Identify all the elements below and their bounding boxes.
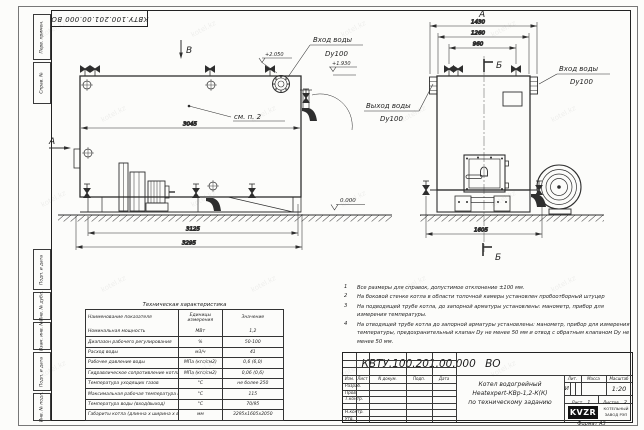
param-unit: МВт: [179, 326, 223, 336]
sheet-cell: Лист 1: [564, 395, 598, 403]
col-ndokum: N докум.: [369, 375, 406, 383]
front-inlet-label: Вход воды: [559, 65, 599, 73]
front-view-title: А: [478, 10, 485, 20]
param-value: 50-100: [223, 336, 283, 346]
param-value: 1,2: [223, 326, 283, 336]
front-outlet-flange: [430, 77, 438, 94]
front-inlet-dn: Dy100: [570, 78, 593, 86]
param-name: Расход воды: [86, 347, 179, 357]
col-data: Дата: [432, 375, 456, 383]
param-name: Габариты котла (длинна х ширина х высота…: [86, 409, 179, 419]
front-outlet-dn: Dy100: [380, 115, 403, 123]
sheets-cell: Листов 2: [598, 395, 632, 403]
dim-1260: 1260: [471, 31, 485, 37]
param-name: Максимальная рабочая температура воды: [86, 388, 179, 398]
elev-2050: +2.050: [265, 52, 284, 58]
param-unit: °С: [179, 378, 223, 388]
elev-0000: 0.000: [340, 198, 356, 204]
company-name: КОТЕЛЬНЫЙЗАВОД РЭП: [601, 406, 631, 417]
param-name: Рабочее давление воды: [86, 357, 179, 367]
section-b-top: Б: [496, 61, 502, 71]
param-name: Диапазон рабочего регулирования: [86, 336, 179, 346]
param-unit: °С: [179, 399, 223, 409]
table-row: Расход воды м3/ч 41: [86, 347, 283, 357]
param-name: Температура уходящих газов: [86, 378, 179, 388]
side-skid: [80, 197, 301, 212]
door-handle-bar: [466, 175, 482, 179]
param-unit: МПа (кгс/см2): [179, 357, 223, 367]
table-row: Диапазон рабочего регулирования % 50-100: [86, 336, 283, 346]
front-base: [437, 190, 530, 212]
view-a-arrow-letter: А: [48, 137, 55, 147]
see-note-label: см. п. 2: [234, 113, 262, 121]
param-value: 0,06 (0,6): [223, 368, 283, 378]
side-labels: В А см. п. 2 Вход воды Dy100 +2.050 +1.9…: [48, 36, 365, 210]
note-text: Все размеры для справок, допустимое откл…: [357, 284, 524, 292]
table-row: Температура уходящих газов °С не более 2…: [86, 378, 283, 388]
note-number: 3: [344, 303, 357, 320]
view-b-letter: В: [186, 46, 192, 56]
col-izm: Изм.: [343, 375, 356, 383]
sheet-label: Лист: [572, 400, 583, 405]
tech-table-rows: Номинальная мощность МВт 1,2 Диапазон ра…: [86, 326, 283, 420]
note-item: 2 На боковой стенке котла в области топо…: [344, 293, 631, 301]
note-text: На подводящей трубе котла, до запорной а…: [357, 303, 631, 320]
note-item: 3 На подводящей трубе котла, до запорной…: [344, 303, 631, 320]
side-inlet-flange: [273, 76, 290, 93]
param-unit: м3/ч: [179, 347, 223, 357]
table-row: Номинальная мощность МВт 1,2: [86, 326, 283, 336]
lit-label: Лит.: [564, 375, 581, 382]
param-unit: °С: [179, 388, 223, 398]
param-unit: МПа (кгс/см2): [179, 368, 223, 378]
elev-1930: +1.930: [332, 61, 351, 67]
title-block: КВТУ.100.201.00.000 ВО Изм. Лист N докум…: [342, 352, 633, 423]
product-name: Котел водогрейныйHeatexpert-КВр-1,2-К(К)…: [456, 375, 564, 422]
col-list: Лист: [356, 375, 369, 383]
note-number: 4: [344, 321, 357, 346]
tech-table: Техническая характеристика Наименование …: [85, 302, 284, 421]
side-inlet-dn: Dy100: [325, 50, 348, 58]
mass-label: Масса: [581, 375, 606, 382]
lit-value: И: [564, 382, 570, 395]
param-value: 115: [223, 388, 283, 398]
param-name: Гидравлическое сопротивление котла: [86, 368, 179, 378]
side-dimensions: 3045 3125 3295: [76, 122, 302, 251]
table-row: Температура воды (вход/выход) °С 70/95: [86, 399, 283, 409]
signature-row-label: Утв.: [343, 416, 370, 423]
dim-1430: 1430: [471, 20, 485, 26]
param-name: Температура воды (вход/выход): [86, 399, 179, 409]
dim-3295: 3295: [182, 241, 196, 247]
side-inlet-label: Вход воды: [313, 36, 353, 44]
param-value: не более 250: [223, 378, 283, 388]
drawing-sheet: kotel.kzkotel.kzkotel.kzkotel.kzkotel.kz…: [0, 0, 644, 430]
tech-col-value: Значение: [223, 310, 283, 326]
notes-list: 1 Все размеры для справок, допустимое от…: [344, 284, 631, 347]
tech-col-unit: Единицы измерения: [179, 310, 223, 326]
col-podp: Подп.: [406, 375, 432, 383]
table-row: Рабочее давление воды МПа (кгс/см2) 0,6 …: [86, 357, 283, 367]
note-text: На боковой стенке котла в области топочн…: [357, 293, 605, 301]
note-text: На отводящей трубе котла до запорной арм…: [357, 321, 631, 346]
note-item: 4 На отводящей трубе котла до запорной а…: [344, 321, 631, 346]
product-name-line: Heatexpert-КВр-1,2-К(К): [456, 389, 564, 398]
tech-table-title: Техническая характеристика: [85, 302, 284, 308]
tech-table-header: Наименование показателя Единицы измерени…: [86, 310, 283, 326]
signature-rows: Разраб.Пров.Т.контр. Н.контр.Утв.: [343, 383, 370, 422]
param-name: Номинальная мощность: [86, 326, 179, 336]
front-panel-box: [503, 92, 522, 106]
scale-label: Масштаб: [606, 375, 632, 382]
param-value: 0,6 (6,0): [223, 357, 283, 367]
kvzr-logo: KVZR: [568, 406, 598, 419]
product-name-line: по техническому заданию: [456, 398, 564, 407]
param-unit: мм: [179, 409, 223, 419]
dim-3125: 3125: [186, 227, 200, 233]
tech-col-name: Наименование показателя: [86, 310, 179, 326]
front-inlet-flange: [530, 77, 538, 94]
table-row: Максимальная рабочая температура воды °С…: [86, 388, 283, 398]
dim-1605: 1605: [474, 228, 488, 234]
note-number: 1: [344, 284, 357, 292]
dim-960: 960: [473, 42, 484, 48]
table-row: Габариты котла (длинна х ширина х высота…: [86, 409, 283, 419]
format-label: Формат А3: [552, 421, 631, 427]
furnace-door: [464, 155, 509, 192]
company-name-line: КОТЕЛЬНЫЙ: [601, 406, 631, 412]
param-value: 41: [223, 347, 283, 357]
param-value: 70/95: [223, 399, 283, 409]
front-outlet-label: Выход воды: [366, 102, 411, 110]
product-name-line: Котел водогрейный: [456, 380, 564, 389]
param-unit: %: [179, 336, 223, 346]
dim-3045: 3045: [183, 122, 197, 128]
section-b-bottom: Б: [495, 253, 501, 263]
company-name-line: ЗАВОД РЭП: [601, 412, 631, 418]
table-row: Гидравлическое сопротивление котла МПа (…: [86, 368, 283, 378]
burner-assembly: [119, 163, 175, 211]
note-number: 2: [344, 293, 357, 301]
note-item: 1 Все размеры для справок, допустимое от…: [344, 284, 631, 292]
side-outlet-pipe: [300, 89, 352, 130]
sheets-label: Листов: [603, 400, 619, 405]
param-value: 3295х1605х2050: [223, 409, 283, 419]
